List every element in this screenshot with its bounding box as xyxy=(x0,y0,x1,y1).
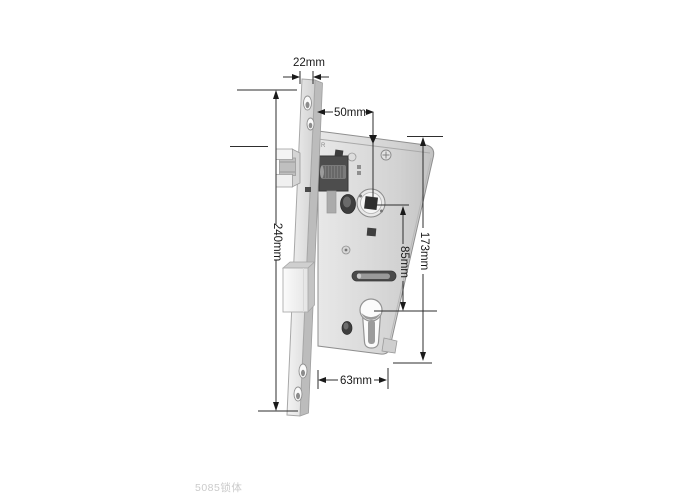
latch-recess xyxy=(280,158,296,176)
deadbolt-front-face xyxy=(283,268,308,312)
dim-50mm-label: 50mm xyxy=(334,107,366,119)
deadbolt-right-face xyxy=(308,262,315,312)
spindle-hub xyxy=(357,189,385,217)
brand-stamp: R xyxy=(321,143,326,149)
diagram-canvas: R xyxy=(0,0,700,500)
deadbolt xyxy=(283,262,315,312)
dim-173mm-label: 173mm xyxy=(418,232,430,270)
faceplate-screw-hole-top-2 xyxy=(307,118,314,130)
case-hole-small xyxy=(348,153,356,161)
case-bottom-tab xyxy=(382,338,397,353)
lock-case: R xyxy=(318,131,434,354)
faceplate-screw-hole-bottom-1 xyxy=(299,364,307,378)
case-mark-b xyxy=(357,171,361,175)
faceplate-screw-hole-top-1 xyxy=(304,96,312,110)
faceplate-mark-square xyxy=(305,187,311,192)
faceplate-screw-hole-bottom-2 xyxy=(294,387,302,401)
dim-85mm-label: 85mm xyxy=(398,246,410,278)
watermark-label: 5085锁体 xyxy=(195,480,242,495)
case-mark-a xyxy=(357,165,361,169)
stop-works-hub xyxy=(341,195,356,214)
bolt-tail-slot xyxy=(352,271,396,281)
dim-22mm-label: 22mm xyxy=(293,57,325,69)
latch-top-wing xyxy=(276,149,293,160)
dim-63mm-label: 63mm xyxy=(340,375,372,387)
fixing-screw xyxy=(381,150,391,160)
faceplate xyxy=(287,79,323,416)
case-square-cutout xyxy=(367,228,377,237)
lock-dimension-drawing: R xyxy=(0,0,700,500)
latch-bolt xyxy=(276,149,300,187)
dim-240mm-label: 240mm xyxy=(271,223,283,261)
case-oval-hole xyxy=(342,322,352,335)
case-round-hole xyxy=(342,246,350,254)
latch-bottom-wing xyxy=(276,175,293,188)
dim-63mm: 63mm xyxy=(318,368,388,389)
